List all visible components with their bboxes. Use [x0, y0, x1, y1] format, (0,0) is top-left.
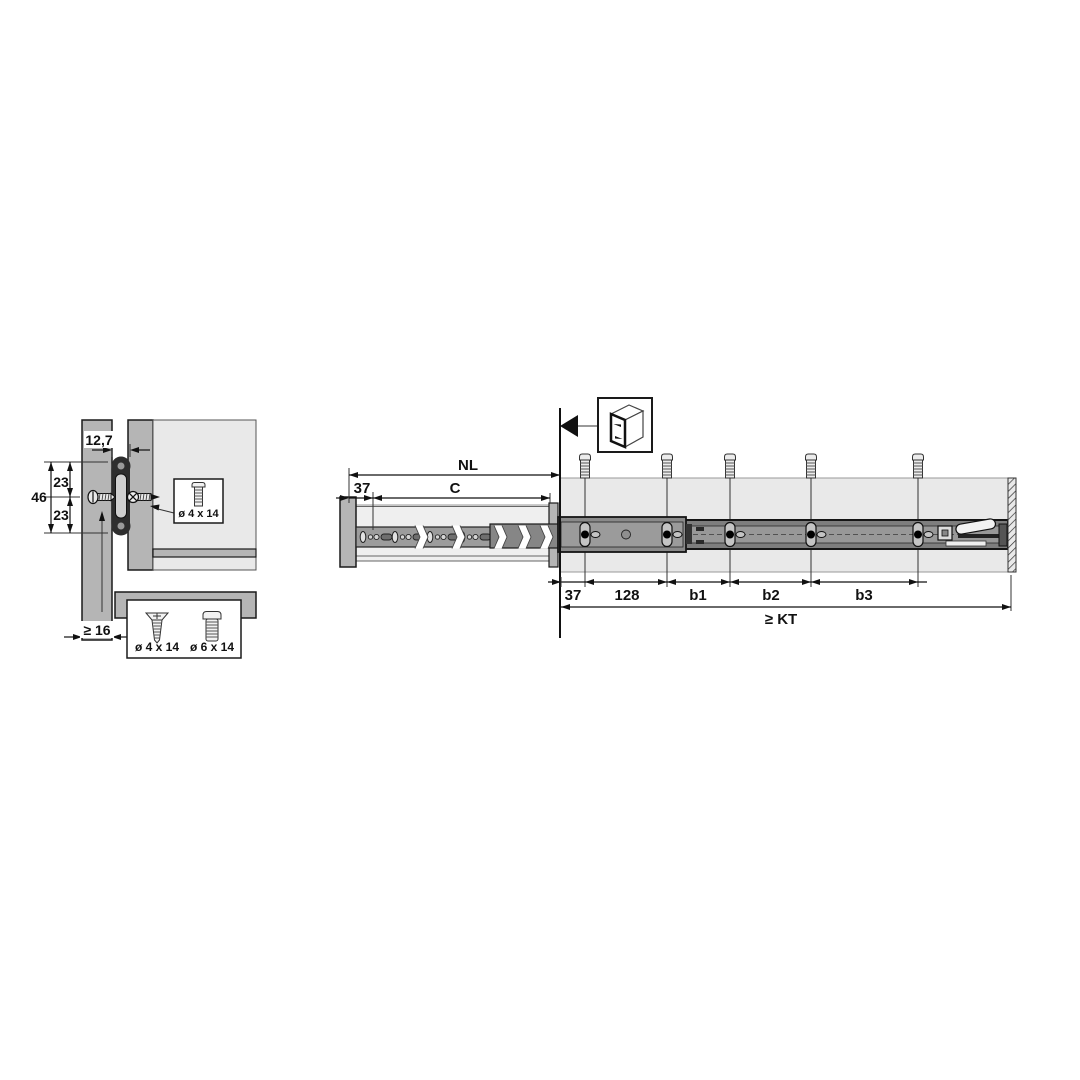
- mounting-screw-icon: [806, 454, 817, 478]
- dim-pitch-label: 128: [614, 587, 639, 604]
- dim-first-hole-label: 37: [565, 587, 582, 604]
- mounting-screw-icon: [913, 454, 924, 478]
- dim-b1-label: b1: [689, 587, 707, 604]
- mounting-screw-icon: [580, 454, 591, 478]
- dim-min-panel-label: ≥ 16: [83, 622, 110, 638]
- dim-c-label: C: [450, 480, 461, 497]
- cabinet-rail: [558, 517, 1008, 552]
- side-view: NL 37 C 37: [336, 398, 1016, 638]
- cabinet-icon-box: [598, 398, 652, 452]
- rail-middle-member: [490, 524, 560, 549]
- drawer-front-panel: [340, 497, 356, 567]
- diagram-canvas: 12,7 46 23 23 ≥ 16: [0, 0, 1080, 1080]
- drawer-slide-technical-drawing: 12,7 46 23 23 ≥ 16: [0, 0, 1080, 1080]
- back-panel-edge: [1008, 478, 1016, 572]
- dim-gap-label: 12,7: [85, 432, 112, 448]
- drawer-bottom-panel: [153, 549, 256, 557]
- legend-screw-small-label: ø 4 x 14: [135, 640, 179, 654]
- mounting-screw-icon: [725, 454, 736, 478]
- screw-legend-box: ø 4 x 14 ø 6 x 14: [127, 600, 241, 658]
- callout-screw-label: ø 4 x 14: [178, 508, 219, 520]
- dim-total-label: 46: [31, 489, 47, 505]
- dim-front-offset-label: 37: [354, 480, 371, 497]
- mounting-screws-row: [580, 454, 924, 478]
- dim-kt-label: ≥ KT: [765, 611, 797, 628]
- dim-b2-label: b2: [762, 587, 780, 604]
- front-direction-arrow-icon: [560, 415, 578, 437]
- cabinet-side-panel: [82, 420, 112, 640]
- dim-upper-label: 23: [53, 474, 69, 490]
- dim-nl-label: NL: [458, 457, 478, 474]
- legend-screw-large-label: ø 6 x 14: [190, 640, 234, 654]
- dim-b3-label: b3: [855, 587, 873, 604]
- dim-lower-label: 23: [53, 507, 69, 523]
- dim-min-panel: ≥ 16: [64, 621, 130, 640]
- mounting-screw-icon: [662, 454, 673, 478]
- screw-callout-box: ø 4 x 14: [174, 479, 223, 523]
- cross-section-view: 12,7 46 23 23 ≥ 16: [31, 420, 256, 658]
- dim-hole-chain: 37 128 b1 b2 b3: [548, 577, 927, 604]
- pan-head-screw-icon: [203, 612, 221, 642]
